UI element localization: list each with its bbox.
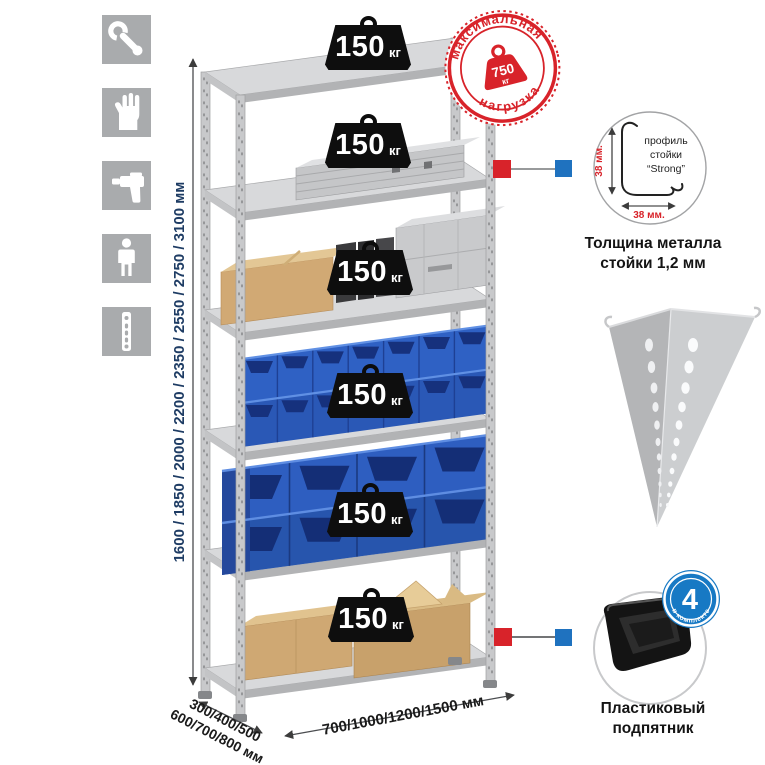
included-count-badge: 4 в комплекте: [662, 570, 720, 628]
callout-marker-red-bottom: [494, 628, 512, 646]
shelf-weight-4: 150кг: [327, 364, 413, 418]
product-infographic: 150кг 150кг 150кг 150кг 150кг 150кг макс…: [0, 0, 765, 765]
weight-unit: кг: [391, 271, 403, 284]
person-icon: [102, 234, 151, 283]
drill-icon: [102, 161, 151, 210]
weight-unit: кг: [389, 144, 401, 157]
shelf-weight-1: 150кг: [325, 16, 411, 70]
profile-caption-line1: Толщина металла: [573, 234, 733, 254]
callout-marker-blue-top: [555, 160, 572, 177]
profile-dim-vertical: 38 мм.: [594, 145, 605, 177]
rack-post-icon: [102, 307, 151, 356]
height-dimension-label: 1600 / 1850 / 2000 / 2200 / 2350 / 2550 …: [171, 52, 189, 692]
shelf-weight-2: 150кг: [325, 114, 411, 168]
profile-label-line3: “Strong”: [647, 163, 685, 175]
wrench-icon: [102, 15, 151, 64]
weight-value: 150: [337, 381, 387, 410]
profile-label-line1: профиль: [644, 135, 688, 147]
profile-label-line2: стойки: [650, 149, 682, 161]
weight-value: 150: [338, 605, 388, 634]
weight-unit: кг: [391, 513, 403, 526]
weight-unit: кг: [392, 618, 404, 631]
weight-value: 150: [337, 500, 387, 529]
foot-caption-line2: подпятник: [577, 719, 729, 739]
foot-caption: Пластиковый подпятник: [577, 699, 729, 740]
weight-unit: кг: [391, 394, 403, 407]
callout-marker-red-top: [493, 160, 511, 178]
callout-marker-blue-bottom: [555, 629, 572, 646]
weight-value: 150: [337, 258, 387, 287]
profile-caption: Толщина металла стойки 1,2 мм: [573, 234, 733, 275]
angle-post-image: [597, 297, 762, 544]
badge-count: 4: [682, 584, 698, 616]
profile-dim-horizontal: 38 мм.: [633, 210, 665, 221]
profile-detail-circle: 38 мм. 38 мм. профиль стойки “Strong”: [587, 104, 715, 237]
profile-caption-line2: стойки 1,2 мм: [573, 254, 733, 274]
weight-unit: кг: [389, 46, 401, 59]
weight-value: 150: [335, 33, 385, 62]
weight-value: 150: [335, 131, 385, 160]
shelf-weight-3: 150кг: [327, 241, 413, 295]
shelf-weight-5: 150кг: [327, 483, 413, 537]
shelf-weight-6: 150кг: [328, 588, 414, 642]
gloves-icon: [102, 88, 151, 137]
foot-caption-line1: Пластиковый: [577, 699, 729, 719]
